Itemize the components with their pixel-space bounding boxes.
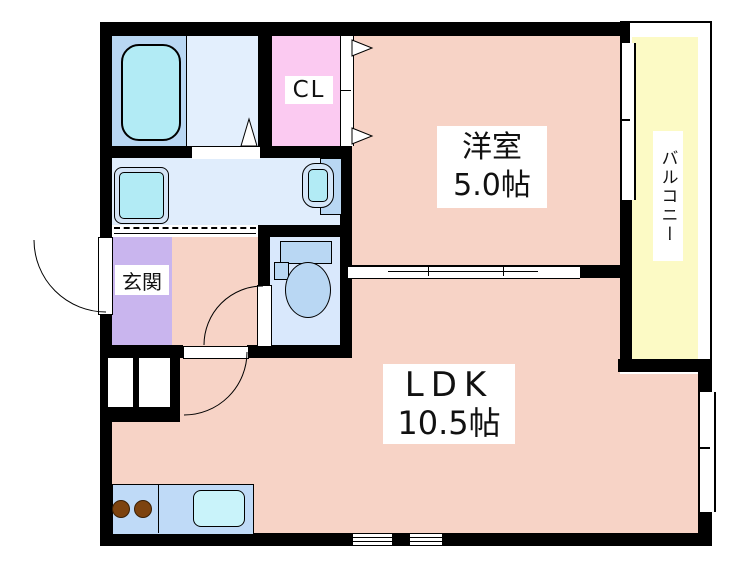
- ldk-door-arc: [184, 352, 247, 415]
- entrance-door-arc: [34, 240, 106, 312]
- doorway-triangle-marker: [241, 119, 257, 146]
- ldk-size: 10.5帖: [397, 404, 500, 442]
- western-room-size: 5.0帖: [453, 167, 531, 205]
- door-arcs-and-markers: [0, 0, 742, 574]
- closet-door-triangle: [352, 128, 372, 144]
- floor-plan: CL 洋室 5.0帖 LDK 10.5帖 玄関 バルコニー: [0, 0, 742, 574]
- closet-door-triangle: [352, 40, 372, 56]
- closet-label: CL: [285, 76, 333, 104]
- toilet-door-arc: [204, 286, 263, 345]
- entrance-label: 玄関: [115, 265, 169, 295]
- ldk-name: LDK: [405, 366, 493, 404]
- closet-label-text: CL: [293, 77, 326, 103]
- entrance-label-text: 玄関: [122, 266, 162, 295]
- western-room-label: 洋室 5.0帖: [437, 126, 547, 208]
- western-room-name: 洋室: [462, 129, 522, 167]
- ldk-label: LDK 10.5帖: [383, 364, 515, 444]
- balcony-label-text: バルコニー: [656, 149, 681, 244]
- balcony-label: バルコニー: [653, 131, 683, 261]
